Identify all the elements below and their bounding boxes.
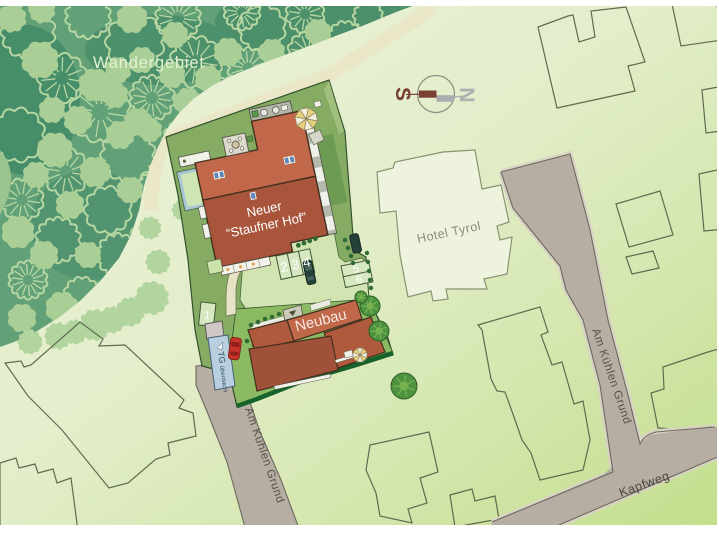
svg-text:N: N <box>455 87 478 102</box>
svg-text:S: S <box>391 87 414 101</box>
svg-text:1: 1 <box>203 309 210 322</box>
svg-text:Wandergebiet: Wandergebiet <box>93 54 205 72</box>
